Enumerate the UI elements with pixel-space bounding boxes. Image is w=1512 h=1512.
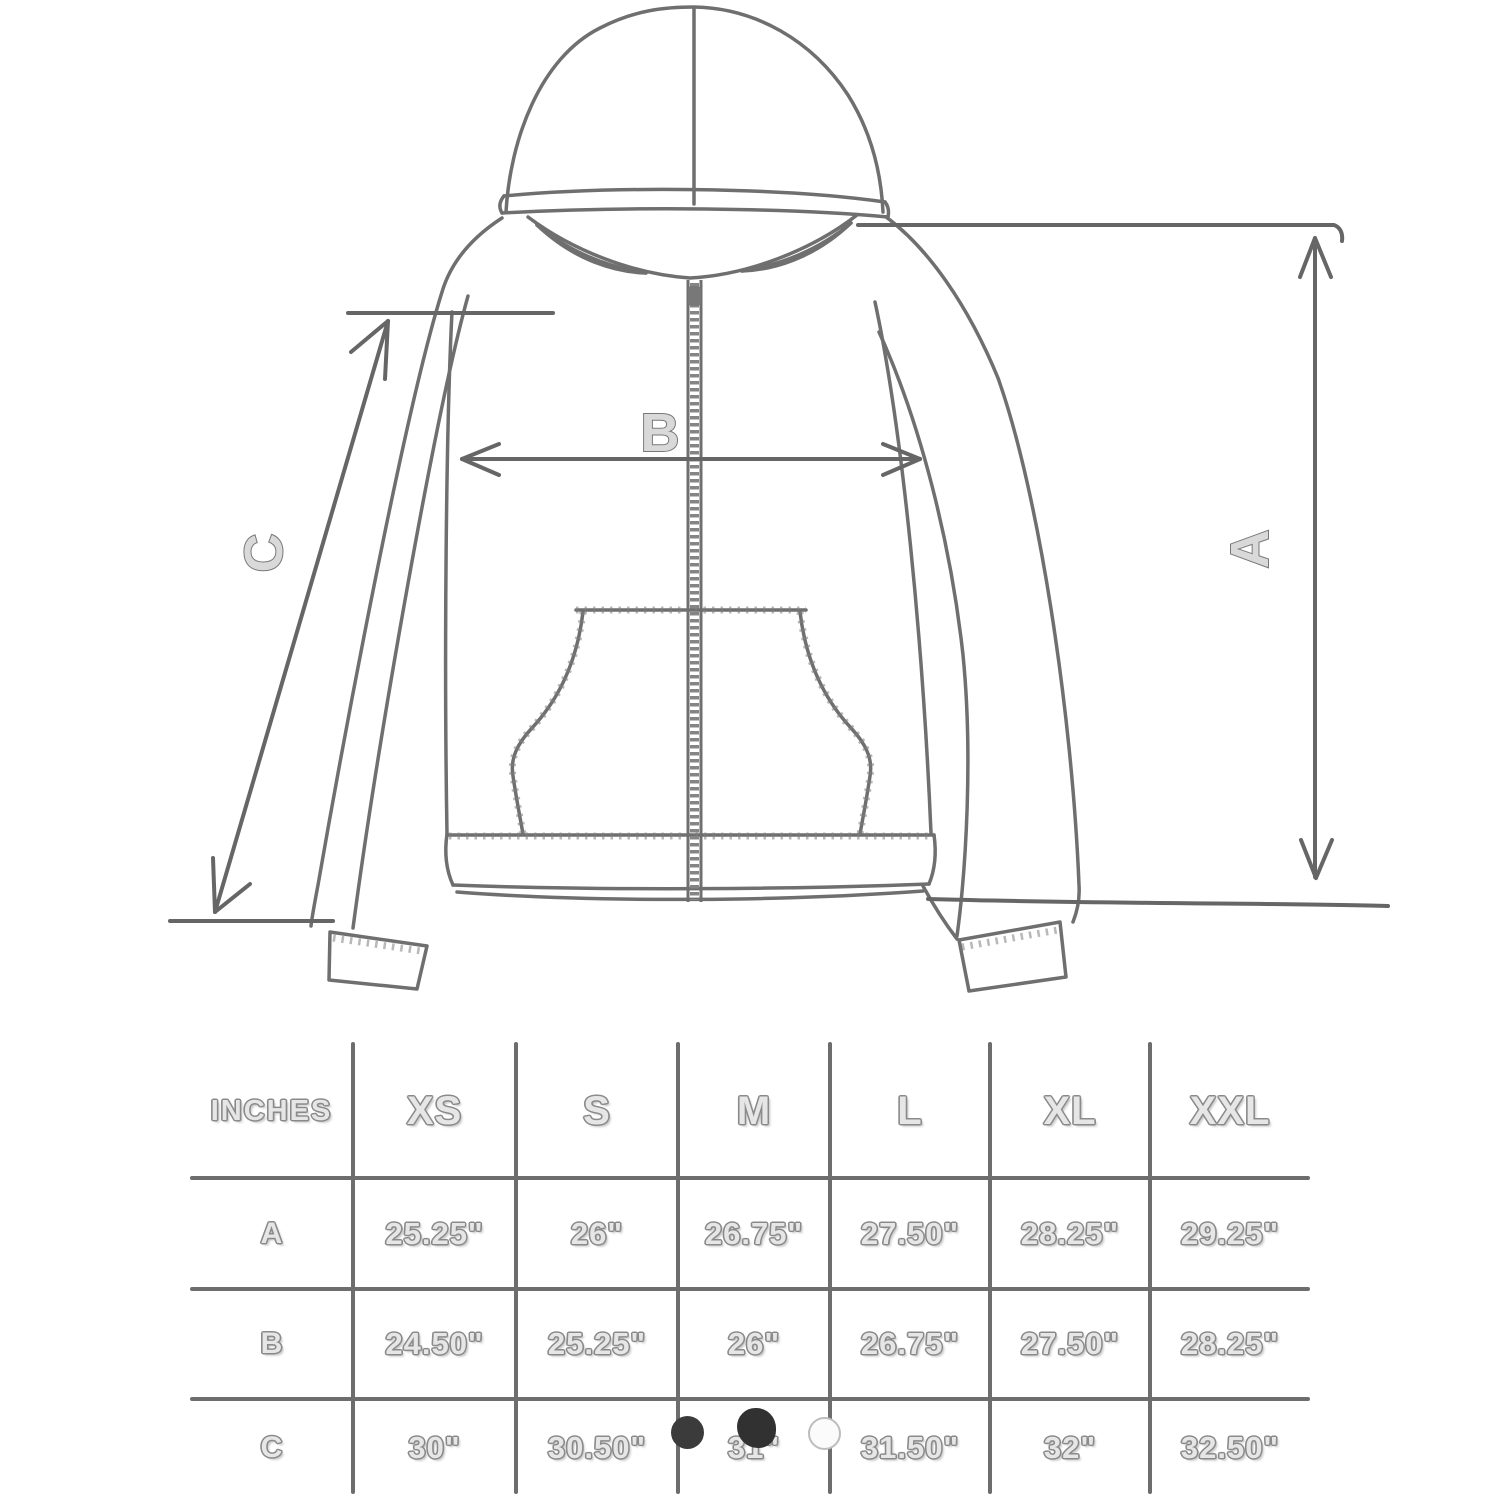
row-label: B [190,1289,353,1399]
dimension-c-sleeve [170,313,553,921]
dimension-lines [170,225,1388,921]
right-cuff [959,922,1066,991]
measurement-cell: 32" [990,1399,1150,1497]
size-chart-page: B A C INCHES XS S M L XL XXL A 25.25" 26… [0,0,1512,1512]
size-column-header: L [830,1045,990,1178]
label-a: A [1220,530,1280,569]
measurement-cell: 30" [353,1399,516,1497]
size-column-header: XL [990,1045,1150,1178]
body-right-edge [875,302,931,833]
zipper [688,280,701,902]
size-column-header: XXL [1150,1045,1310,1178]
measurement-cell: 27.50" [990,1289,1150,1399]
right-sleeve-outer [886,217,1079,922]
dark-dot-artifact [671,1416,704,1449]
dimension-b-chest [462,444,920,475]
measurement-cell: 31.50" [830,1399,990,1497]
size-column-header: M [678,1045,830,1178]
label-c: C [234,534,294,573]
hoodie-measurement-diagram: B A C [0,0,1512,1040]
left-sleeve-outer [311,218,502,926]
measurement-cell: 32.50" [1150,1399,1310,1497]
measurement-cell: 29.25" [1150,1178,1310,1289]
measurement-cell: 25.25" [353,1178,516,1289]
measurement-cell: 26.75" [678,1178,830,1289]
neckline [528,215,857,278]
size-column-header: S [516,1045,678,1178]
measurement-cell: 28.25" [1150,1289,1310,1399]
kangaroo-pocket [512,610,870,834]
dimension-a-length [858,225,1388,906]
measurement-cell: 26.75" [830,1289,990,1399]
label-b: B [641,403,680,463]
zipper-pull [688,286,701,306]
measurement-cell: 28.25" [990,1178,1150,1289]
dimension-letters: B A C [234,403,1280,573]
unit-header: INCHES [190,1045,353,1178]
dark-dot-artifact [737,1408,776,1448]
row-label: C [190,1399,353,1497]
measurement-cell: 26" [516,1178,678,1289]
measurement-cell: 25.25" [516,1289,678,1399]
measurement-cell: 27.50" [830,1178,990,1289]
row-label: A [190,1178,353,1289]
measurement-cell: 24.50" [353,1289,516,1399]
right-sleeve-inner [879,332,968,936]
measurement-cell: 26" [678,1289,830,1399]
measurement-cell: 30.50" [516,1399,678,1497]
size-column-header: XS [353,1045,516,1178]
light-dot-artifact [808,1417,841,1450]
hood [500,7,889,278]
